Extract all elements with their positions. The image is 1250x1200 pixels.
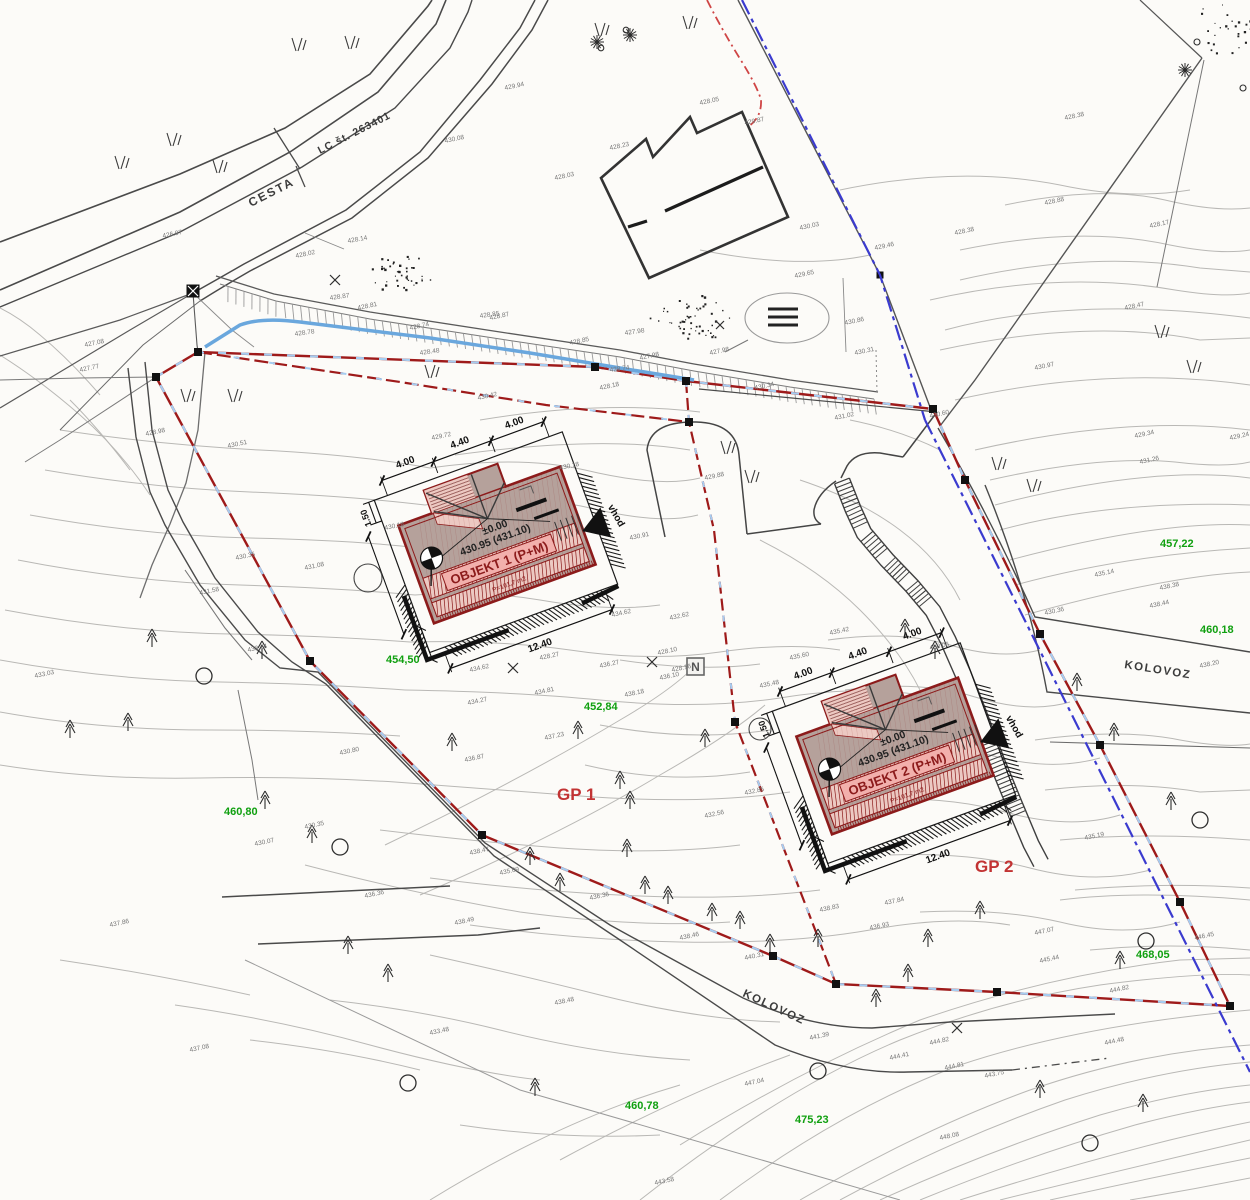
svg-text:452,84: 452,84 xyxy=(584,701,619,713)
svg-text:468,05: 468,05 xyxy=(1136,949,1170,961)
svg-text:457,22: 457,22 xyxy=(1160,538,1194,550)
svg-text:GP 2: GP 2 xyxy=(975,857,1013,876)
svg-text:N: N xyxy=(691,660,700,674)
svg-text:460,18: 460,18 xyxy=(1200,624,1234,636)
svg-text:460,80: 460,80 xyxy=(224,806,258,818)
svg-text:460,78: 460,78 xyxy=(625,1100,659,1112)
svg-text:GP 1: GP 1 xyxy=(557,785,595,804)
svg-text:475,23: 475,23 xyxy=(795,1114,829,1126)
svg-text:454,50: 454,50 xyxy=(386,654,420,666)
